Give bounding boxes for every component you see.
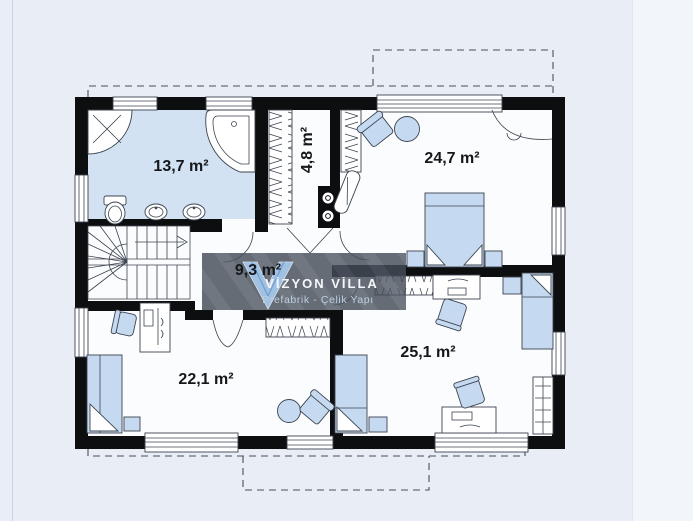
double-bed-symbol [425,193,484,267]
window-bottom-2 [287,436,333,449]
room-label-closet: 4,8 m² [299,127,316,173]
single-bed-symbol [522,273,553,349]
window-top-2 [206,97,252,110]
left-page-border [12,0,13,521]
room-label-bedroom-bottom-left: 22,1 m² [178,371,233,388]
window-top-3 [377,95,502,112]
toilet-symbol [104,196,126,224]
single-bed-symbol [87,355,122,433]
room-label-hallway: 9,3 m² [235,262,281,279]
floor-plan-page: VİZYON VİLLA Prefabrik - Çelik Yapı 13,7… [0,0,693,521]
desk-symbol [140,303,170,352]
window-top-1 [113,97,157,110]
shelf-symbol [533,377,553,434]
room-label-bathroom: 13,7 m² [153,158,208,175]
window-left-2 [75,308,88,357]
round-table-symbol [395,117,420,142]
room-label-bedroom-bottom-right: 25,1 m² [400,344,455,361]
sink-symbol [183,204,205,220]
desk-symbol [433,275,480,299]
staircase-symbol [88,226,190,299]
nightstand-symbol [407,251,424,267]
sink-symbol [145,204,167,220]
window-bottom-1 [145,433,238,452]
nightstand-symbol [503,277,521,294]
floor-plan-image: VİZYON VİLLA Prefabrik - Çelik Yapı 13,7… [0,0,693,521]
window-bottom-3 [435,433,528,452]
window-right-1 [552,207,565,255]
watermark-title: VİZYON VİLLA [265,276,379,291]
nightstand-symbol [124,417,140,431]
wardrobe-symbol [341,110,361,172]
round-table-symbol [278,400,301,423]
room-label-bedroom-top-right: 24,7 m² [424,150,479,167]
window-left-1 [75,175,88,222]
desk-symbol [442,407,496,433]
watermark: VİZYON VİLLA Prefabrik - Çelik Yapı [202,253,406,310]
clothes-rail-symbol [266,318,330,337]
nightstand-symbol [369,417,387,432]
nightstand-symbol [485,251,502,267]
watermark-subtitle: Prefabrik - Çelik Yapı [262,294,373,306]
window-right-2 [552,332,565,375]
right-page-margin [632,0,693,521]
wardrobe-symbol [269,110,292,224]
single-bed-symbol [335,355,367,433]
